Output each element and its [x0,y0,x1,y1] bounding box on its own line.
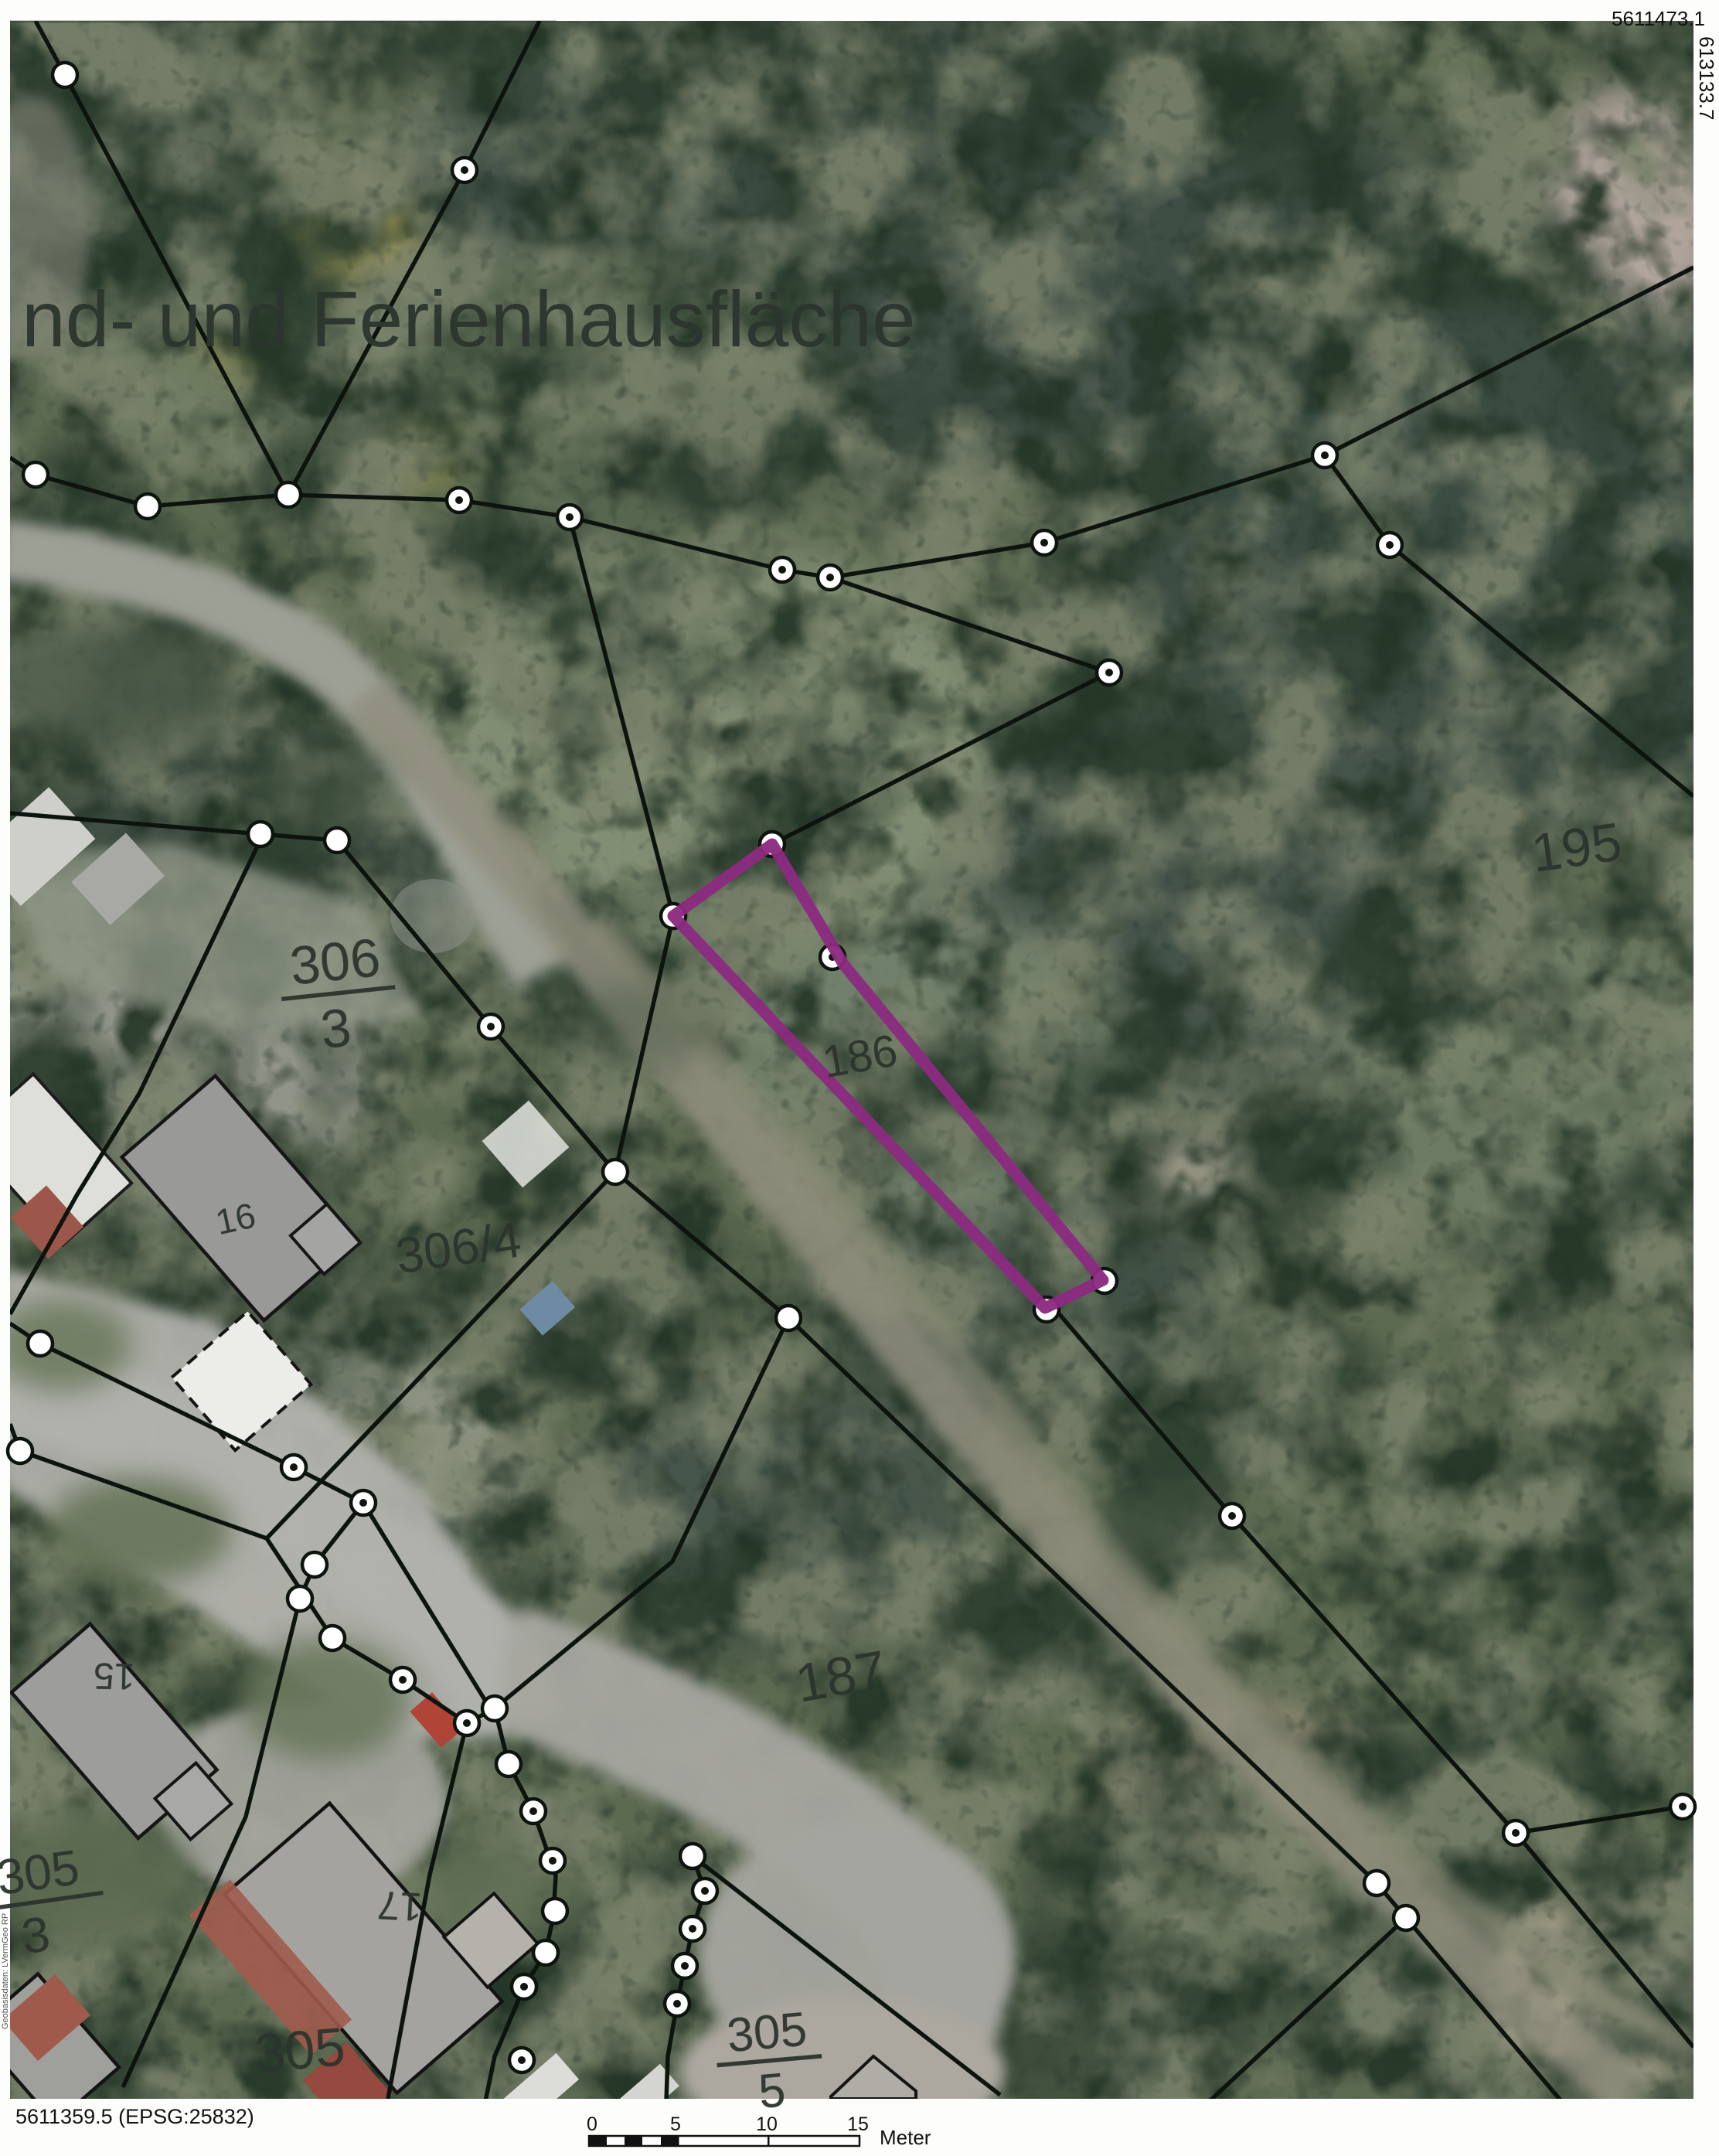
svg-text:5: 5 [757,2063,788,2119]
svg-text:Geobasisdaten: LVermGeo RP: Geobasisdaten: LVermGeo RP [1,1913,10,2029]
svg-text:15: 15 [94,1655,135,1697]
svg-text:305: 305 [252,2016,347,2084]
svg-text:306: 306 [287,927,383,996]
svg-text:5611359.5 (EPSG:25832): 5611359.5 (EPSG:25832) [15,2105,254,2128]
svg-text:5: 5 [670,2113,681,2135]
svg-text:613133.7: 613133.7 [1695,36,1718,120]
svg-text:Meter: Meter [880,2126,931,2149]
svg-text:3: 3 [318,997,354,1061]
svg-text:16: 16 [212,1195,259,1243]
svg-text:nd- und Ferienhausfläche: nd- und Ferienhausfläche [22,275,916,363]
svg-text:17: 17 [376,1882,424,1930]
svg-text:5611473.1: 5611473.1 [1612,7,1705,30]
svg-text:10: 10 [756,2113,778,2135]
svg-text:0: 0 [587,2113,597,2135]
svg-text:15: 15 [847,2113,869,2135]
svg-text:195: 195 [1527,811,1625,883]
svg-text:305: 305 [725,2003,809,2063]
